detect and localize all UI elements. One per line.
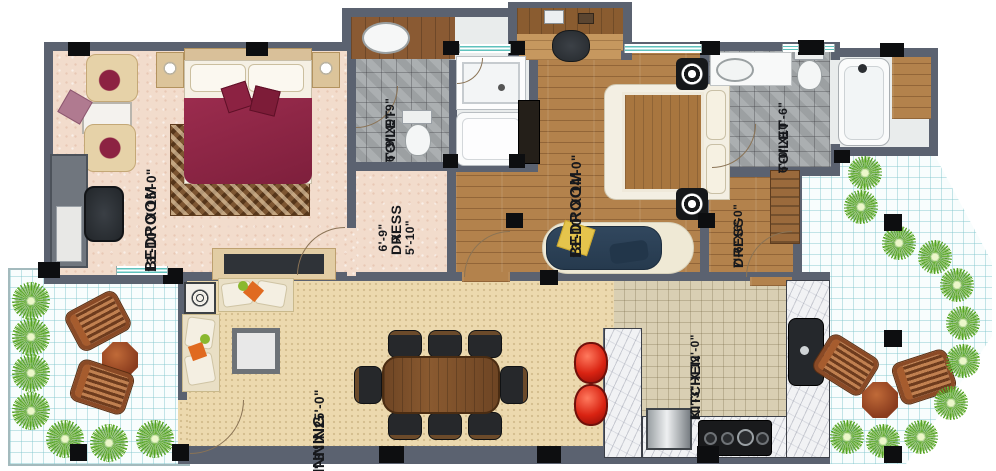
column bbox=[698, 213, 715, 228]
column bbox=[884, 330, 902, 347]
label-dining: DINNING 10'-3" X 25'-0" bbox=[299, 275, 341, 471]
dining-chair-1 bbox=[388, 330, 422, 358]
dining-chair-4 bbox=[388, 412, 422, 440]
column bbox=[884, 446, 902, 463]
column bbox=[443, 41, 459, 55]
laptop bbox=[544, 10, 564, 24]
stove-burner-4 bbox=[756, 432, 769, 445]
dining-chair-5 bbox=[428, 412, 462, 440]
column bbox=[68, 42, 90, 56]
window bbox=[824, 44, 835, 52]
plant-icon bbox=[90, 424, 128, 462]
plant-accent-1 bbox=[238, 281, 248, 291]
label-bedroom-1: BEDROOM 13'-10" X 15'-0" bbox=[132, 72, 172, 272]
stove-burner-2 bbox=[721, 432, 734, 445]
office-chair bbox=[84, 186, 124, 242]
red-stool-2 bbox=[574, 384, 608, 426]
dresser-panel bbox=[56, 206, 82, 262]
plant-icon bbox=[830, 420, 864, 454]
plant-icon bbox=[882, 226, 916, 260]
plant-icon bbox=[848, 156, 882, 190]
breakfast-bar bbox=[604, 328, 642, 458]
room-dims: 10'-3" X 12'-0" bbox=[689, 334, 702, 420]
armchair-2 bbox=[84, 124, 136, 172]
room-dims: 7'-6"X6'-0" bbox=[732, 204, 745, 268]
speaker-top bbox=[676, 58, 708, 90]
column bbox=[509, 154, 525, 168]
bathtub-2-inner bbox=[844, 66, 884, 140]
column bbox=[798, 40, 824, 55]
column bbox=[540, 270, 558, 285]
column bbox=[700, 41, 720, 55]
column bbox=[70, 444, 87, 461]
bedroom-1-door-gap bbox=[347, 228, 356, 276]
label-kitchen: KITCHEN 10'-3" X 12'-0" bbox=[677, 270, 715, 420]
room-dims: 6'-0"X10'-6" bbox=[777, 102, 790, 173]
column bbox=[537, 446, 561, 463]
plant-icon bbox=[946, 306, 980, 340]
room-dims: 13'-10" X 15'-0" bbox=[144, 168, 159, 272]
room-dims: 6'-9" X 5'-10" bbox=[377, 220, 417, 255]
dining-kitchen-pass bbox=[603, 281, 614, 328]
plant-accent-2 bbox=[200, 334, 210, 344]
plant-icon bbox=[12, 282, 50, 320]
spiral-ottoman bbox=[184, 282, 216, 314]
dining-chair-7 bbox=[354, 366, 382, 404]
label-dress-1: DRESS 6'-9" X 5'-10" bbox=[365, 145, 429, 255]
window bbox=[459, 44, 511, 53]
column bbox=[379, 446, 404, 463]
terrace-table-right bbox=[862, 382, 898, 418]
plant-icon bbox=[12, 392, 50, 430]
label-toilet-2: TOILET 6'-0"X10'-6" bbox=[767, 43, 801, 173]
bed-1-blanket bbox=[184, 98, 312, 184]
plant-icon bbox=[844, 190, 878, 224]
nightstand-right bbox=[312, 52, 340, 88]
plant-icon bbox=[940, 268, 974, 302]
column bbox=[697, 446, 719, 463]
label-toilet-1: TOILET 6'-9"X9'-9" bbox=[374, 32, 408, 162]
dining-chair-3 bbox=[468, 330, 502, 358]
dining-chair-2 bbox=[428, 330, 462, 358]
bed-2-blanket bbox=[622, 92, 704, 192]
armchair-1 bbox=[86, 54, 138, 102]
label-dress-2: DRESS 7'-6"X6'-0" bbox=[722, 158, 756, 268]
toilet-2-wood-deck bbox=[892, 57, 931, 119]
shower-drain bbox=[498, 84, 505, 91]
column bbox=[172, 444, 189, 461]
column bbox=[884, 214, 902, 231]
column bbox=[506, 213, 523, 228]
room-dims: 13'-10" X 14'-0" bbox=[569, 154, 584, 258]
toilet-2-sink bbox=[716, 58, 754, 82]
column bbox=[443, 154, 458, 168]
plant-icon bbox=[12, 354, 50, 392]
column bbox=[38, 262, 60, 278]
kitchen-sink-drain bbox=[800, 346, 809, 355]
coffee-table bbox=[232, 328, 280, 374]
dining-chair-6 bbox=[468, 412, 502, 440]
plant-icon bbox=[12, 318, 50, 356]
plant-icon bbox=[946, 344, 980, 378]
desk-book bbox=[578, 13, 594, 24]
column bbox=[509, 41, 525, 55]
plant-icon bbox=[918, 240, 952, 274]
bathtub-2-faucet bbox=[858, 64, 867, 73]
column bbox=[880, 43, 904, 57]
dining-chair-8 bbox=[500, 366, 528, 404]
column bbox=[834, 150, 850, 163]
label-bedroom-2: BEDROOM 13'-10" X 14'-0" bbox=[557, 58, 597, 258]
plant-icon bbox=[136, 420, 174, 458]
dining-table bbox=[382, 356, 500, 414]
stove-burner-3 bbox=[737, 429, 754, 446]
plant-icon bbox=[934, 386, 968, 420]
plant-icon bbox=[904, 420, 938, 454]
stove-burner-1 bbox=[704, 432, 717, 445]
red-stool-1 bbox=[574, 342, 608, 384]
room-dims: 10'-3" X 25'-0" bbox=[312, 389, 327, 471]
floor-plan: BEDROOM 13'-10" X 15'-0" TOILET 6'-9"X9'… bbox=[0, 0, 996, 471]
column bbox=[246, 42, 268, 56]
window bbox=[624, 44, 702, 53]
